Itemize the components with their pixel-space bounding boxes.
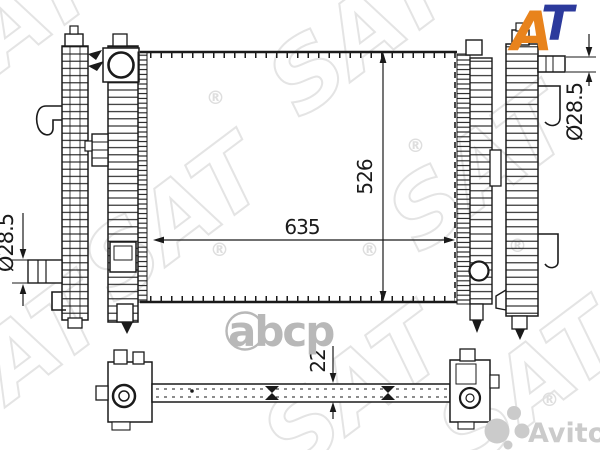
registered-mark: ® — [406, 135, 425, 157]
avito-logo-dot — [507, 406, 521, 420]
port-circle — [460, 388, 480, 408]
registered-mark: ® — [210, 239, 229, 261]
registered-mark: ® — [206, 87, 225, 109]
at-logo: T A — [507, 0, 577, 63]
registered-mark: ® — [360, 239, 379, 261]
mount-hook-lower — [538, 234, 558, 268]
sat-watermark: SAT — [248, 0, 478, 138]
radiator-diagram-image: SAT SAT SAT SAT SAT SAT SAT ® ® ® ® ® ® — [0, 0, 600, 450]
port-circle — [113, 385, 135, 407]
arrow-up-icon — [586, 72, 593, 82]
core-left-fins — [138, 52, 147, 302]
inlet-port — [109, 53, 134, 78]
core-profile-bar — [152, 384, 450, 402]
arrow-down-icon — [586, 47, 593, 57]
avito-text: Avito — [528, 418, 600, 449]
arrow-down-icon — [20, 249, 27, 259]
radiator-technical-drawing: SAT SAT SAT SAT SAT SAT SAT ® ® ® ® ® ® — [0, 0, 600, 450]
side-bracket — [490, 150, 501, 186]
filler-cap — [65, 34, 83, 46]
width-value: 635 — [284, 215, 319, 239]
outlet-pipe — [28, 260, 62, 283]
pipe-right-value: Ø28.5 — [563, 83, 587, 141]
outlet-port — [470, 262, 489, 281]
at-logo-letter-a: A — [507, 0, 553, 63]
abcp-watermark: abcp — [227, 307, 335, 356]
avito-logo-dot — [485, 419, 510, 444]
mount-hook — [37, 106, 62, 135]
left-tank-assembly — [85, 34, 139, 334]
overflow-spout — [88, 50, 102, 60]
abcp-text: abcp — [228, 307, 334, 356]
registered-mark: ® — [540, 389, 559, 411]
height-value: 526 — [353, 159, 377, 194]
pipe-left-value: Ø28.5 — [0, 214, 18, 272]
avito-logo-dot — [504, 441, 513, 450]
drain-plug — [117, 304, 133, 322]
side-view-inner-right — [457, 40, 501, 333]
